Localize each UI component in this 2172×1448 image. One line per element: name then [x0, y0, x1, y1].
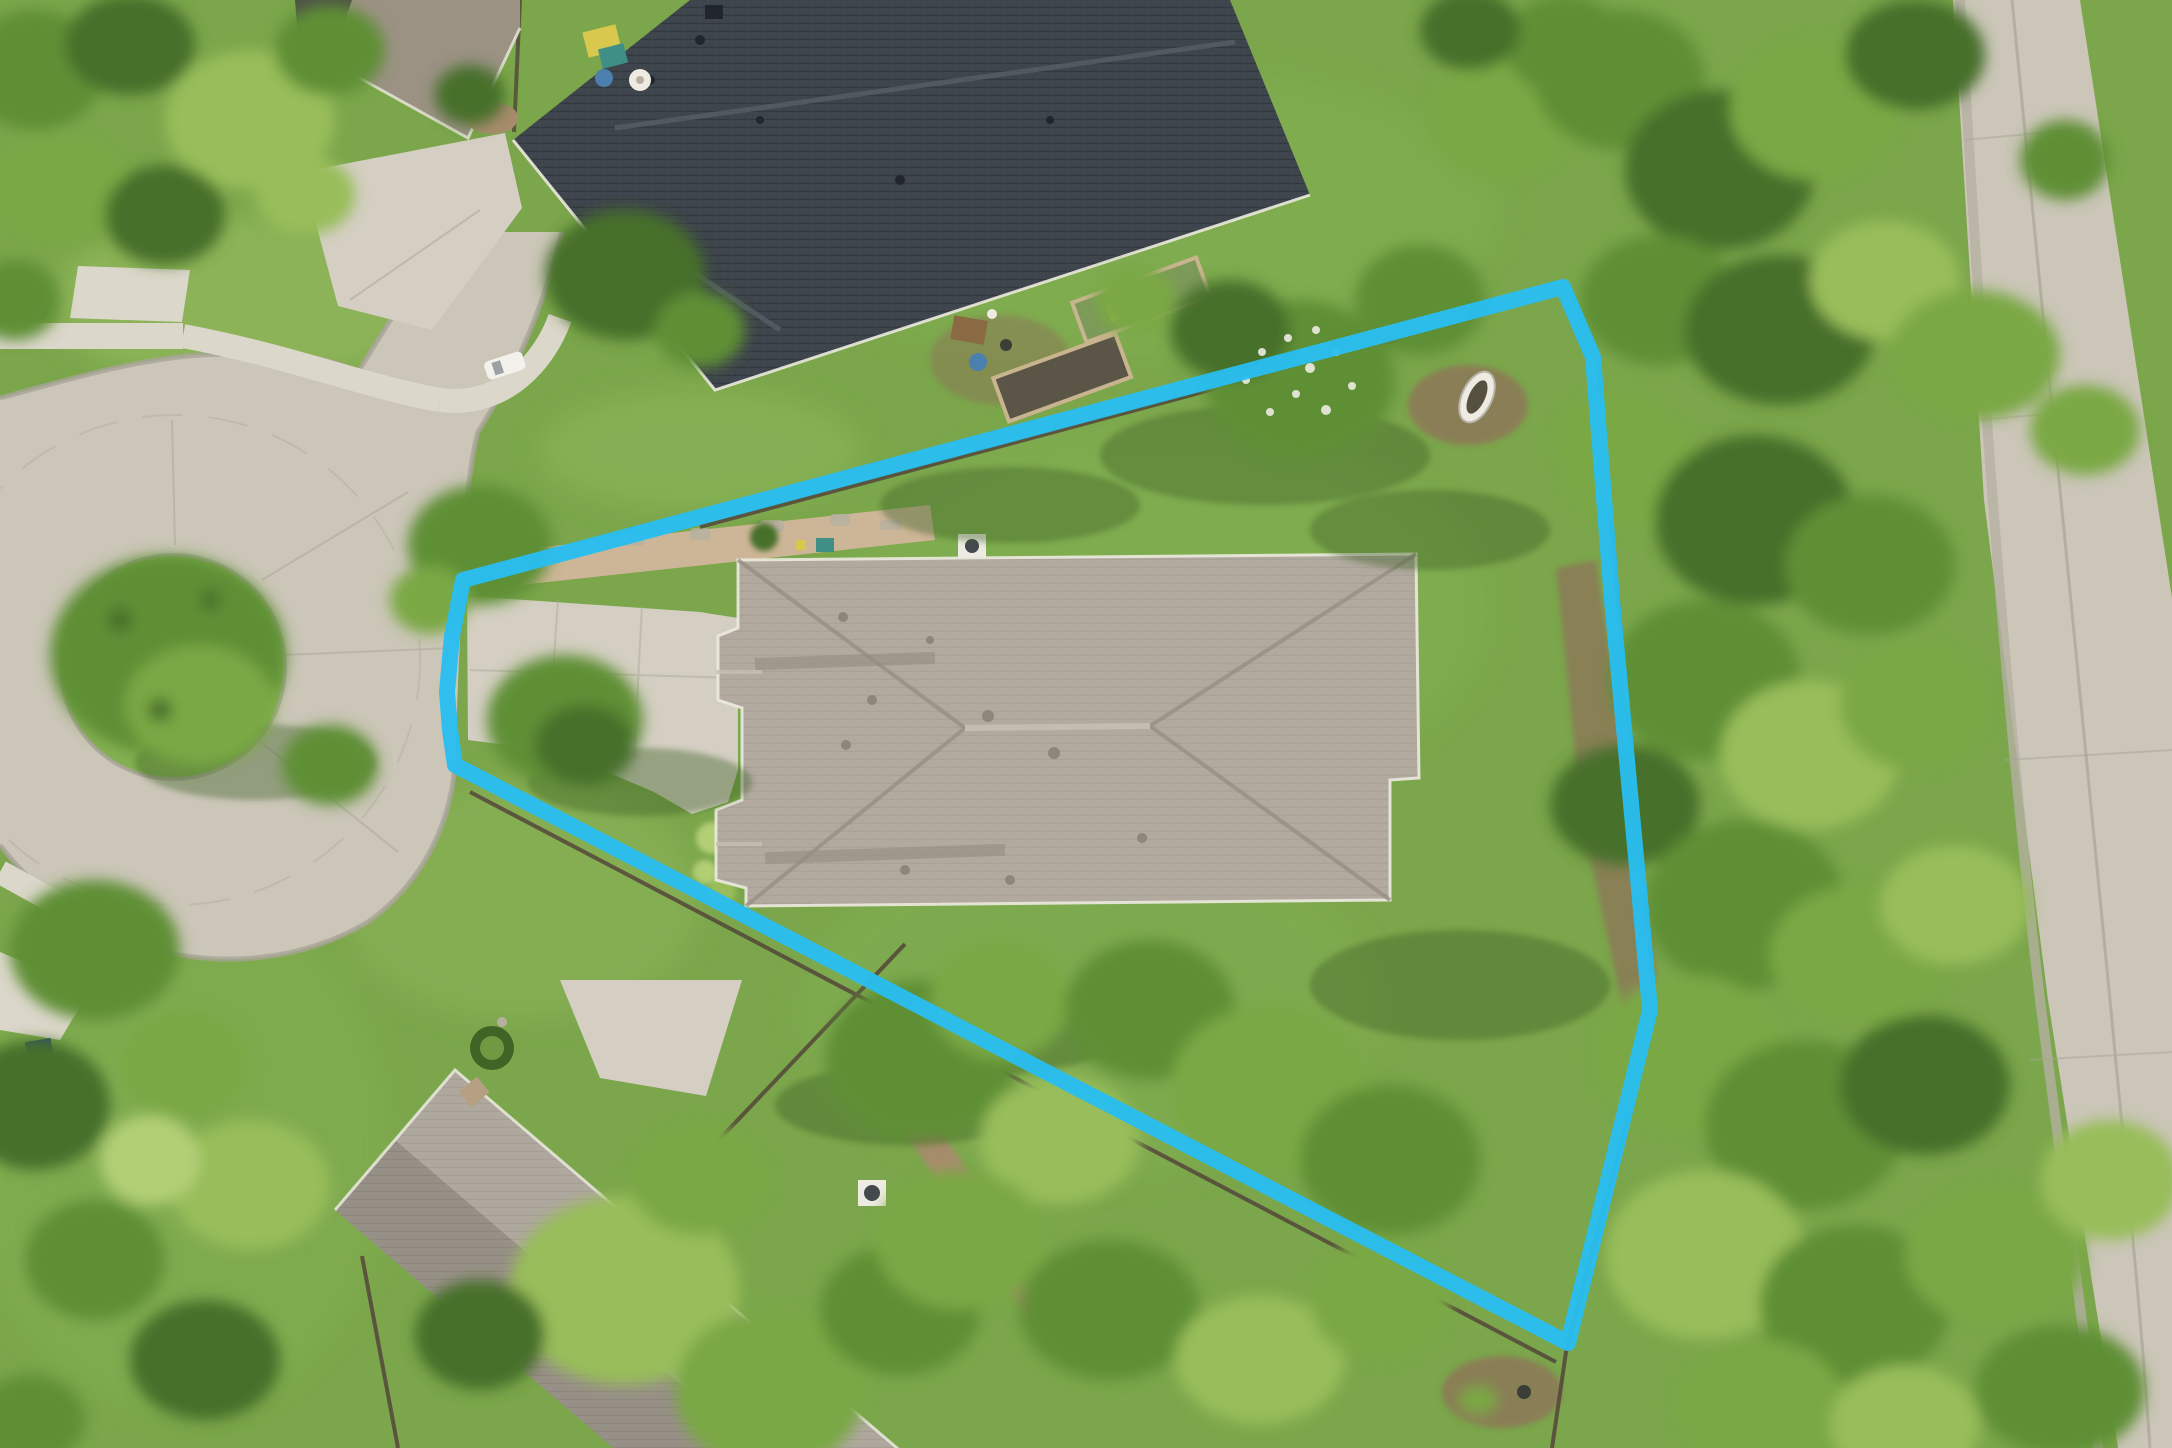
- dish-feed: [636, 76, 644, 84]
- blue-barrel: [969, 353, 987, 371]
- driveway-apron-top-left: [70, 266, 190, 322]
- subject-house-roof: [716, 554, 1419, 906]
- aerial-photo-canvas: [0, 0, 2172, 1448]
- ac-unit-bottom: [858, 1180, 886, 1206]
- dark-pot: [1000, 339, 1012, 351]
- well-cap: [1517, 1385, 1531, 1399]
- aerial-photo: [0, 0, 2172, 1448]
- main-roof-ridge: [965, 726, 1150, 728]
- dirt-patch-bottom: [1442, 1356, 1562, 1428]
- white-bucket: [987, 309, 997, 319]
